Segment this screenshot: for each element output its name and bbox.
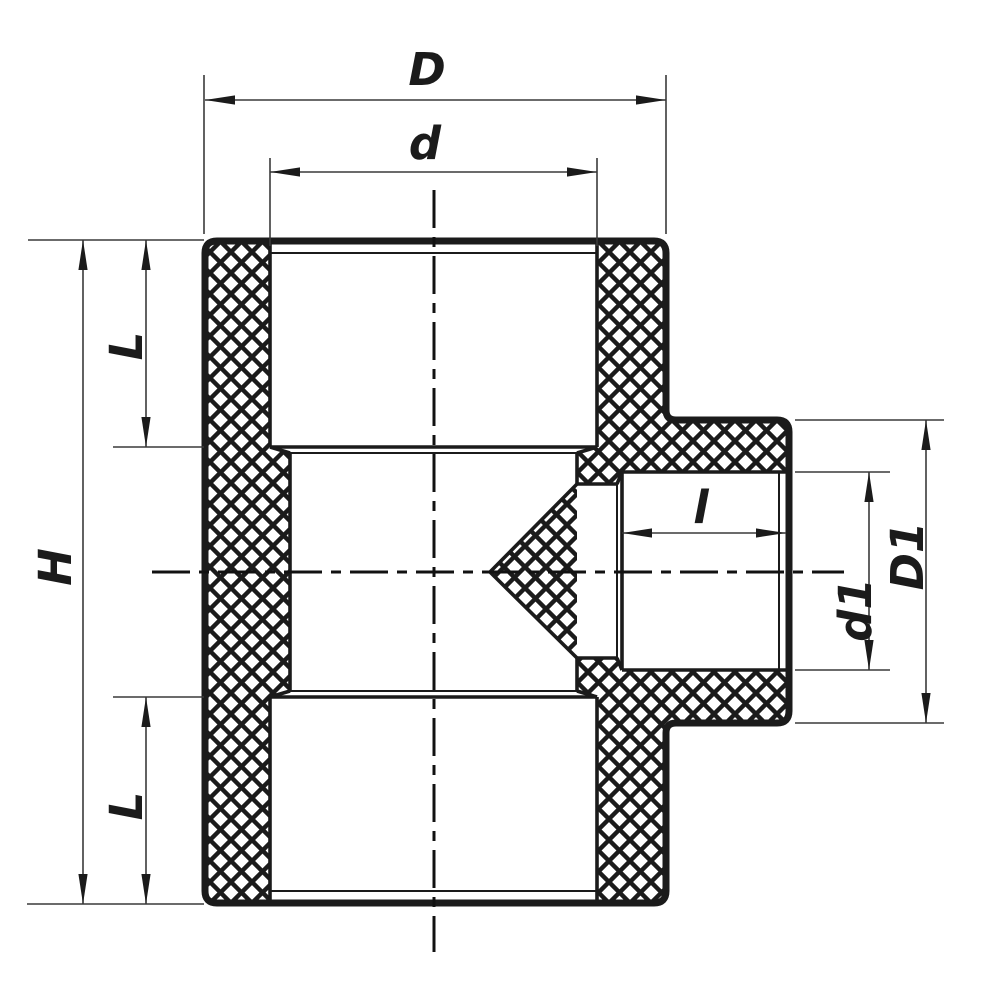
arrow-D1-bottom — [921, 693, 930, 723]
arrow-D-left — [205, 95, 235, 104]
extension-lines — [27, 75, 944, 904]
dim-label-D1: D1 — [881, 522, 934, 591]
dim-label-d1: d1 — [829, 578, 882, 642]
drawing-page: D d H L L l d1 D1 — [0, 0, 1000, 1000]
arrow-D-right — [636, 95, 666, 104]
arrow-d1-bottom — [864, 640, 873, 670]
dim-label-l: l — [693, 481, 709, 534]
arrow-L-bottom-up — [141, 697, 150, 727]
arrow-L-bottom-down — [141, 874, 150, 904]
arrow-d1-top — [864, 472, 873, 502]
dim-label-L-bottom: L — [100, 792, 153, 821]
arrow-D1-top — [921, 420, 930, 450]
dimension-labels: D d H L L l d1 D1 — [29, 43, 934, 820]
arrow-L-top-up — [141, 240, 150, 270]
dim-label-d: d — [409, 117, 442, 170]
arrow-d-left — [270, 167, 300, 176]
arrow-H-top — [78, 240, 87, 270]
arrow-L-top-down — [141, 417, 150, 447]
arrow-d-right — [567, 167, 597, 176]
technical-drawing: D d H L L l d1 D1 — [0, 0, 1000, 1000]
dim-label-D: D — [408, 43, 445, 96]
arrow-l-right — [756, 528, 786, 537]
dim-label-L-top: L — [100, 332, 153, 361]
arrow-H-bottom — [78, 874, 87, 904]
arrow-l-left — [622, 528, 652, 537]
dim-label-H: H — [29, 548, 82, 586]
